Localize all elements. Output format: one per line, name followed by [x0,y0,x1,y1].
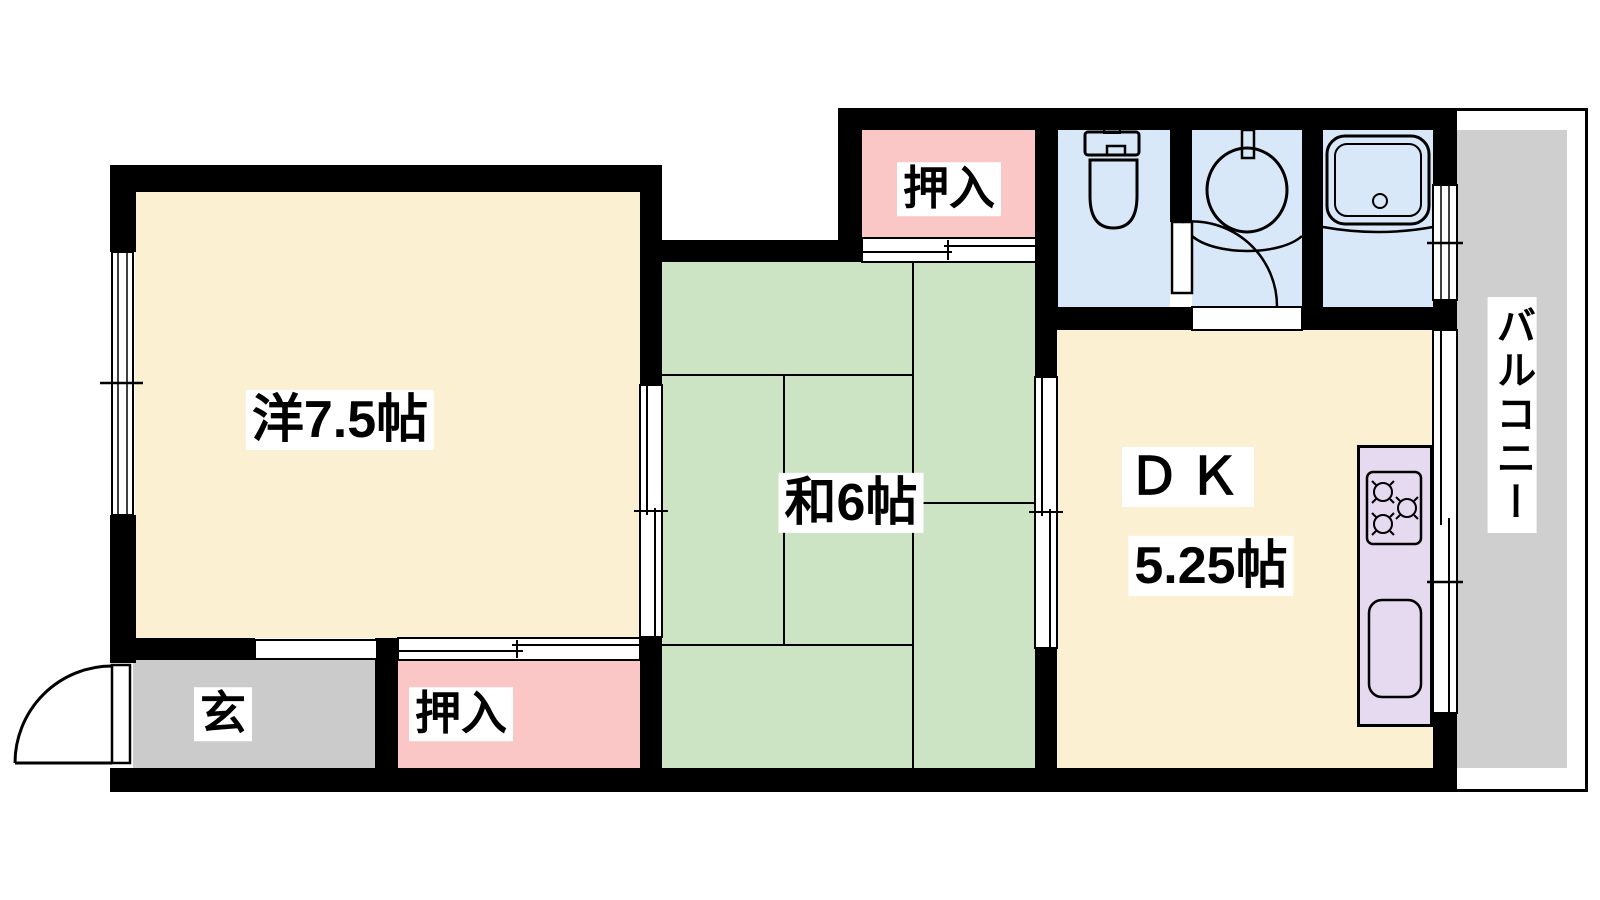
wall [110,768,1457,792]
wall [1035,648,1057,768]
entrance-door [15,665,130,763]
label-dk-size: 5.25帖 [1128,536,1293,596]
wall [1170,130,1192,222]
label-closet-lower: 押入 [409,687,513,741]
label-balcony: バルコニー [1488,297,1537,533]
wall [1302,307,1457,330]
wall [1035,307,1192,330]
doorway-entrance-west [255,640,377,659]
wall [1433,713,1457,768]
wall [1035,330,1057,377]
doorway-washroom [1192,307,1302,330]
room-entrance [133,660,375,768]
fusuma-closet-lower [398,638,640,660]
wall [1302,130,1323,307]
room-washroom [1192,130,1302,307]
wall [662,240,862,262]
label-dk-room: ＤＫ [1122,447,1254,507]
label-japanese-room: 和6帖 [779,473,924,533]
wall [838,108,1457,130]
label-western-room: 洋7.5帖 [246,390,434,450]
room-bath [1323,130,1433,307]
wall [640,192,662,385]
label-entrance: 玄 [194,687,252,741]
wall [375,638,398,768]
wall [838,108,862,242]
wall [110,165,662,192]
wall [1035,130,1058,330]
room-toilet [1058,130,1170,307]
wall [110,165,136,252]
fusuma-closet-upper [862,238,1036,262]
label-closet-upper: 押入 [897,162,1001,216]
floor-plan: 洋7.5帖 和6帖 ＤＫ 5.25帖 押入 押入 玄 バルコニー [0,0,1600,900]
kitchen-counter [1357,445,1433,727]
wall [640,637,662,768]
wall [133,638,255,660]
wall [1433,108,1457,185]
